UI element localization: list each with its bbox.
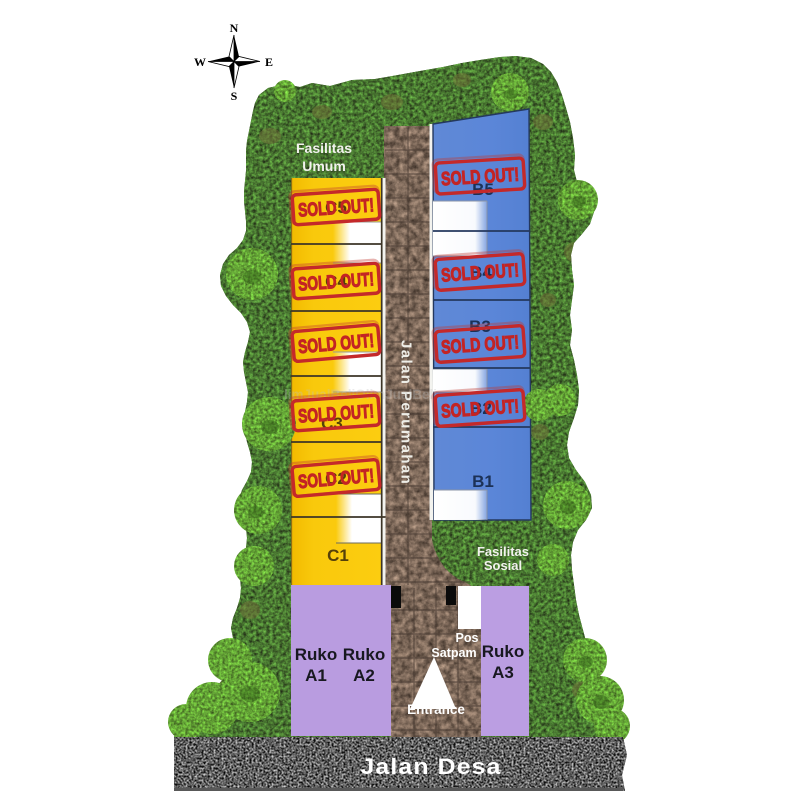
- svg-text:Sosial: Sosial: [484, 558, 522, 573]
- svg-text:Ruko: Ruko: [482, 642, 525, 661]
- svg-text:N: N: [230, 21, 239, 35]
- svg-text:Ruko: Ruko: [295, 645, 338, 664]
- svg-text:Fasilitas: Fasilitas: [296, 140, 352, 156]
- svg-text:Jalan Perumahan: Jalan Perumahan: [398, 340, 415, 485]
- svg-text:Entrance: Entrance: [407, 702, 465, 717]
- svg-text:S: S: [231, 89, 238, 103]
- svg-text:E: E: [265, 55, 273, 69]
- svg-text:Jalan Desa: Jalan Desa: [361, 754, 502, 779]
- svg-text:A3: A3: [492, 663, 514, 682]
- svg-text:Ruko: Ruko: [343, 645, 386, 664]
- svg-text:Fasilitas: Fasilitas: [477, 544, 529, 559]
- svg-text:B1: B1: [472, 472, 494, 491]
- svg-text:W: W: [194, 55, 206, 69]
- svg-text:Satpam: Satpam: [431, 646, 476, 660]
- svg-text:C1: C1: [327, 546, 349, 565]
- svg-text:Pos: Pos: [456, 631, 479, 645]
- svg-text:A1: A1: [305, 666, 327, 685]
- svg-text:Umum: Umum: [302, 158, 346, 174]
- svg-text:A2: A2: [353, 666, 375, 685]
